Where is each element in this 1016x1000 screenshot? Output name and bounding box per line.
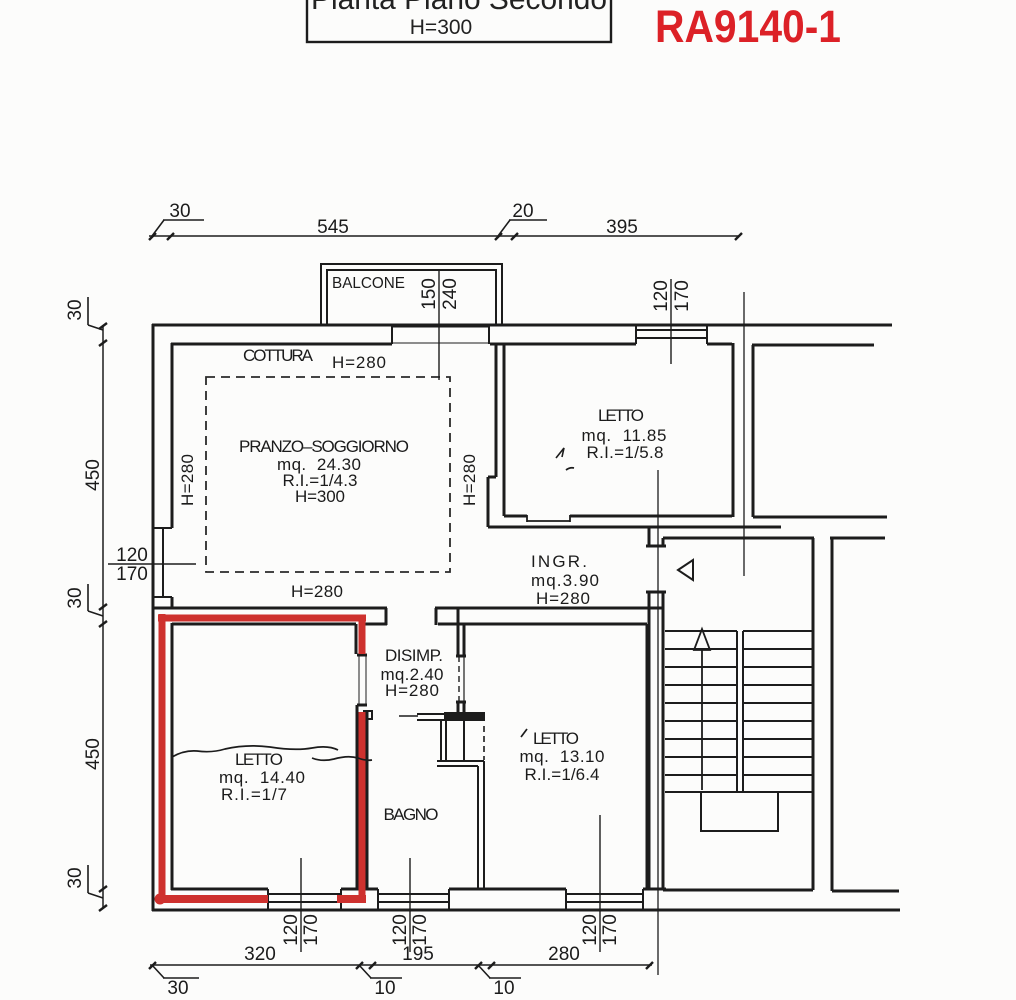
svg-text:395: 395	[606, 217, 638, 238]
svg-text:H=280: H=280	[178, 454, 197, 506]
svg-text:450: 450	[83, 459, 104, 491]
svg-text:170: 170	[672, 280, 693, 312]
svg-text:LETTO: LETTO	[533, 729, 579, 748]
svg-text:280: 280	[548, 944, 580, 965]
svg-text:545: 545	[317, 217, 349, 238]
svg-text:LETTO: LETTO	[598, 406, 644, 425]
svg-text:DISIMP.: DISIMP.	[385, 646, 443, 665]
svg-text:30: 30	[167, 978, 188, 999]
svg-text:INGR.: INGR.	[531, 552, 587, 571]
svg-text:120: 120	[651, 280, 672, 312]
svg-text:H=280: H=280	[536, 589, 590, 608]
svg-text:170: 170	[301, 914, 322, 946]
svg-text:320: 320	[244, 944, 276, 965]
svg-text:120: 120	[281, 914, 302, 946]
svg-text:170: 170	[600, 914, 621, 946]
svg-text:120: 120	[580, 914, 601, 946]
svg-text:240: 240	[440, 278, 461, 310]
svg-text:RA9140-1: RA9140-1	[655, 1, 841, 52]
svg-text:R.I.=1/5.8: R.I.=1/5.8	[587, 443, 664, 462]
svg-text:R.I.=1/6.4: R.I.=1/6.4	[525, 765, 600, 784]
svg-text:PRANZO–SOGGIORNO: PRANZO–SOGGIORNO	[239, 437, 409, 456]
svg-text:BALCONE: BALCONE	[332, 275, 405, 292]
svg-text:H=280: H=280	[332, 353, 386, 372]
svg-text:120: 120	[116, 545, 148, 566]
svg-text:150: 150	[419, 278, 440, 310]
svg-text:195: 195	[402, 944, 434, 965]
svg-text:170: 170	[116, 564, 148, 585]
svg-text:LETTO: LETTO	[235, 750, 283, 769]
svg-text:30: 30	[65, 299, 86, 320]
svg-text:20: 20	[512, 201, 533, 222]
svg-text:BAGNO: BAGNO	[384, 805, 439, 824]
svg-text:10: 10	[493, 978, 514, 999]
svg-text:120: 120	[390, 914, 411, 946]
svg-text:H=280: H=280	[460, 454, 479, 506]
svg-text:H=280: H=280	[291, 582, 343, 601]
svg-text:COTTURA: COTTURA	[243, 346, 314, 365]
svg-text:Pianta Piano Secondo: Pianta Piano Secondo	[311, 0, 607, 16]
svg-text:30: 30	[65, 867, 86, 888]
svg-text:H=280: H=280	[385, 681, 439, 700]
svg-text:450: 450	[83, 738, 104, 770]
svg-text:mq.3.90: mq.3.90	[531, 571, 599, 590]
svg-text:10: 10	[374, 978, 395, 999]
svg-text:30: 30	[65, 587, 86, 608]
svg-text:170: 170	[410, 914, 431, 946]
svg-text:mq. 13.10: mq. 13.10	[520, 747, 605, 766]
svg-text:R.I.=1/7: R.I.=1/7	[221, 785, 287, 804]
svg-text:H=300: H=300	[410, 16, 472, 39]
svg-text:30: 30	[169, 201, 190, 222]
svg-text:H=300: H=300	[295, 487, 345, 506]
